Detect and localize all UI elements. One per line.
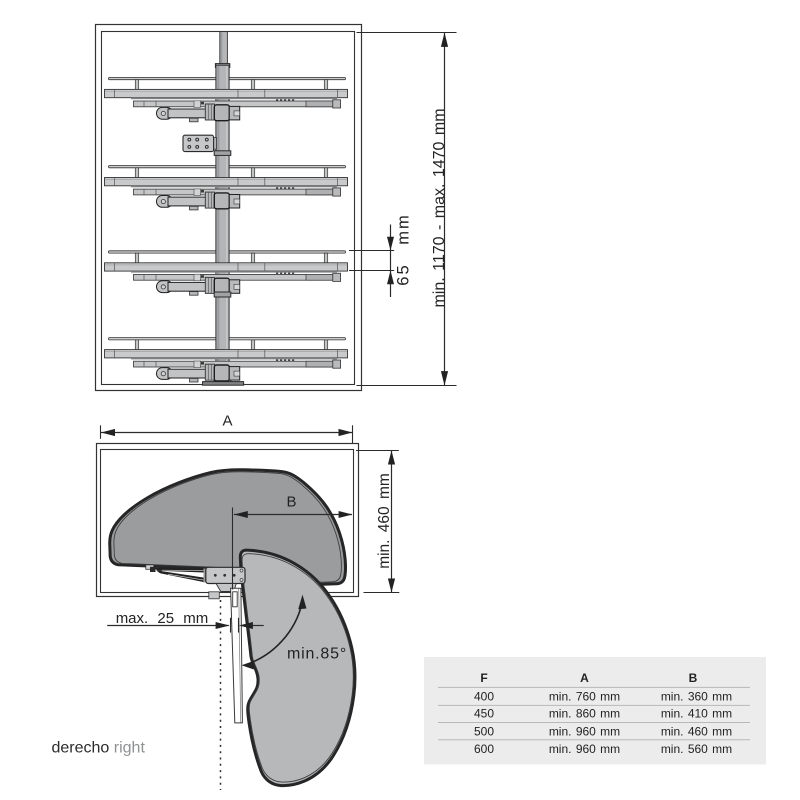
svg-text:min. 960 mm: min. 960 mm xyxy=(549,742,620,756)
svg-text:B: B xyxy=(286,494,296,511)
svg-text:derecho right: derecho right xyxy=(52,740,146,757)
svg-text:min. 560 mm: min. 560 mm xyxy=(661,742,732,756)
svg-text:65 mm: 65 mm xyxy=(395,213,413,285)
svg-text:min. 460 mm: min. 460 mm xyxy=(661,724,732,738)
svg-text:450: 450 xyxy=(474,707,494,721)
svg-text:600: 600 xyxy=(474,742,494,756)
svg-text:min.85°: min.85° xyxy=(287,646,347,663)
svg-text:B: B xyxy=(689,671,698,685)
svg-text:A: A xyxy=(580,671,589,685)
svg-text:min. 760 mm: min. 760 mm xyxy=(549,689,620,703)
svg-text:max. 25 mm: max. 25 mm xyxy=(116,610,209,627)
svg-text:A: A xyxy=(222,412,232,429)
svg-text:400: 400 xyxy=(474,689,494,703)
svg-text:min. 460 mm: min. 460 mm xyxy=(376,473,393,569)
svg-text:min. 960 mm: min. 960 mm xyxy=(549,724,620,738)
svg-text:F: F xyxy=(480,671,487,685)
svg-text:min. 410 mm: min. 410 mm xyxy=(661,707,732,721)
svg-text:500: 500 xyxy=(474,724,494,738)
svg-text:min. 360 mm: min. 360 mm xyxy=(661,689,732,703)
svg-text:min. 1170 - max. 1470 mm: min. 1170 - max. 1470 mm xyxy=(431,108,448,307)
svg-text:min. 860 mm: min. 860 mm xyxy=(549,707,620,721)
